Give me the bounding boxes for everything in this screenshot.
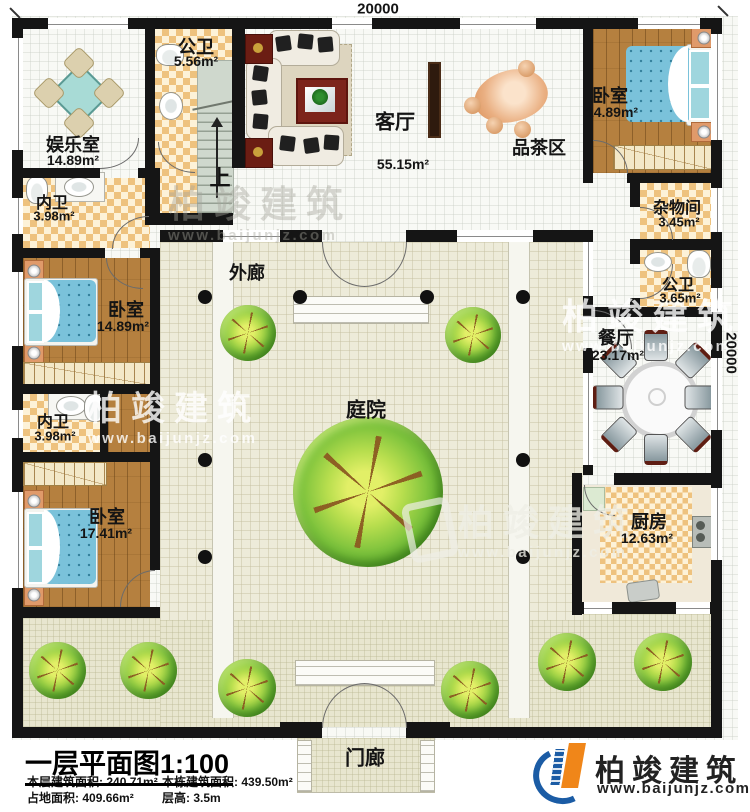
tv-cabinet (428, 62, 441, 138)
stat-value: 439.50m² (241, 775, 292, 789)
column (516, 290, 530, 304)
stair-arrow-head (211, 117, 223, 127)
column (198, 290, 212, 304)
sink (64, 177, 94, 197)
tea-stool (518, 60, 535, 77)
window (583, 373, 593, 465)
wardrobe (23, 462, 107, 486)
room-area-bath-right: 3.65m² (659, 291, 700, 306)
column (198, 550, 212, 564)
watermark-url: www.baijunjz.com (88, 431, 260, 447)
room-area-bath-inner-1: 3.98m² (33, 209, 74, 224)
floor-plan-canvas: 20000 20000 (0, 0, 750, 812)
watermark-url: www.baijunjz.com (168, 228, 352, 244)
tree-branches (225, 666, 269, 710)
window (583, 242, 593, 296)
wall (23, 168, 100, 178)
wall (640, 239, 711, 250)
tree (220, 305, 276, 361)
tree-branches (641, 640, 685, 684)
column (198, 453, 212, 467)
porch-steps (297, 740, 312, 792)
room-area-entertainment: 14.89m² (47, 152, 99, 168)
column (293, 290, 307, 304)
wall (150, 462, 160, 570)
wall (140, 248, 160, 258)
wall (406, 230, 457, 242)
dining-table-center (648, 388, 666, 406)
plan-title: 一层平面图1:100 (25, 742, 233, 786)
wall (23, 248, 105, 258)
tree (538, 633, 596, 691)
sofa-cushion (279, 135, 296, 152)
window (12, 492, 23, 588)
wall (12, 607, 160, 618)
room-label-veranda: 外廊 (229, 259, 265, 285)
tree (218, 659, 276, 717)
watermark-url: www.baijunjz.com (562, 339, 742, 355)
sofa-cushion (317, 36, 333, 52)
watermark-text: 柏竣建筑 (458, 502, 638, 543)
room-label-porch: 门廊 (345, 742, 385, 771)
window (12, 198, 23, 234)
stat-floor-height: 层高: 3.5m (162, 789, 221, 806)
stat-label: 占地面积: (27, 791, 79, 805)
dining-chair (644, 434, 668, 465)
tree-branches (127, 649, 170, 692)
window (12, 38, 23, 150)
sofa-cushion (275, 35, 292, 52)
pillow (27, 281, 44, 312)
watermark-text: 柏竣建筑 (88, 390, 260, 428)
window (460, 18, 536, 29)
stair-direction-label: 上 (210, 162, 231, 192)
window (48, 18, 128, 29)
wall (150, 248, 160, 394)
courtyard-entry-step (293, 296, 429, 324)
room-area-bedroom-top-right: 14.89m² (586, 104, 638, 120)
porch-steps (420, 740, 435, 792)
room-area-dining: 23.17m² (592, 347, 644, 363)
window (332, 18, 372, 29)
wall (232, 18, 245, 168)
pillow (689, 50, 711, 86)
wall (583, 465, 593, 475)
watermark: 柏竣建筑 www.baijunjz.com (562, 298, 742, 355)
window (711, 34, 722, 140)
side-table-lamp (253, 43, 263, 53)
wall (614, 473, 722, 485)
pillow (27, 512, 44, 548)
tree-branches (452, 314, 495, 357)
tea-stool (464, 97, 481, 114)
window (676, 602, 710, 614)
window (12, 410, 23, 438)
tree-branches (545, 640, 589, 684)
dining-chair (593, 386, 624, 410)
sofa-cushion (323, 134, 339, 150)
tree-branches (448, 668, 492, 712)
room-label-living: 客厅 (375, 106, 415, 135)
window (711, 188, 722, 232)
stat-value: 409.66m² (82, 791, 133, 805)
watermark: 柏竣建筑 www.baijunjz.com (88, 392, 260, 446)
watermark: 柏竣建筑 www.baijunjz.com (168, 186, 352, 244)
dimension-right: 20000 (723, 332, 740, 374)
wall (23, 452, 160, 462)
logo-url: www.baijunjz.com (597, 780, 750, 797)
dimension-tick (717, 5, 728, 16)
room-label-courtyard: 庭院 (346, 394, 386, 423)
sofa-cushion (303, 137, 320, 154)
sofa-cushion (252, 65, 269, 82)
room-area-kitchen: 12.63m² (621, 530, 673, 546)
tea-stool (486, 117, 503, 134)
stat-land-area: 占地面积: 409.66m² (27, 789, 134, 806)
wall (533, 230, 593, 242)
watermark-text: 柏竣建筑 (168, 184, 352, 225)
column (516, 453, 530, 467)
window (584, 602, 612, 614)
watermark: 柏竣建筑 www.baijunjz.com (458, 504, 638, 561)
sofa-cushion (251, 89, 267, 105)
room-area-living: 55.15m² (377, 156, 429, 172)
pillow (689, 86, 711, 120)
pillow (27, 548, 44, 584)
tree (634, 633, 692, 691)
room-area-bedroom-mid-left: 14.89m² (97, 318, 149, 334)
wall (627, 173, 711, 183)
room-label-tea-area: 品茶区 (512, 134, 566, 160)
plan-title-text: 一层平面图 (25, 749, 160, 779)
plan-scale: 1:100 (160, 749, 229, 779)
tree (445, 307, 501, 363)
room-area-bath-inner-2: 3.98m² (34, 429, 75, 444)
stat-label: 层高: (162, 791, 190, 805)
plant (312, 89, 328, 105)
column (420, 290, 434, 304)
window (457, 230, 533, 242)
dimension-top: 20000 (357, 1, 399, 18)
stat-value: 3.5m (193, 791, 220, 805)
stove-burner (696, 521, 705, 530)
side-table-lamp (253, 147, 263, 157)
wall (280, 722, 322, 738)
room-area-bath-top: 5.56m² (174, 53, 218, 69)
watermark-url: www.baijunjz.com (458, 545, 638, 561)
walkway-strip-right (508, 242, 530, 718)
wall (450, 727, 711, 738)
wall (138, 168, 160, 178)
window (711, 488, 722, 560)
sofa-cushion (252, 113, 268, 129)
tree-branches (36, 649, 79, 692)
watermark-text: 柏竣建筑 (562, 296, 742, 337)
tree-branches (227, 312, 270, 355)
wardrobe (613, 145, 712, 170)
window (711, 358, 722, 430)
tree (29, 642, 86, 699)
wall (150, 178, 160, 218)
tree (120, 642, 177, 699)
wall (630, 239, 640, 264)
stove-burner (696, 533, 705, 542)
room-area-bedroom-bottom-left: 17.41m² (80, 525, 132, 541)
wall (630, 183, 640, 207)
window (638, 18, 700, 29)
window (12, 272, 23, 346)
pillow (27, 312, 44, 343)
sink (159, 92, 183, 120)
room-area-storage: 3.45m² (658, 215, 699, 230)
tree (441, 661, 499, 719)
wardrobe (23, 362, 152, 386)
wall (12, 727, 280, 738)
sofa-cushion (297, 33, 313, 49)
wall (406, 722, 450, 738)
